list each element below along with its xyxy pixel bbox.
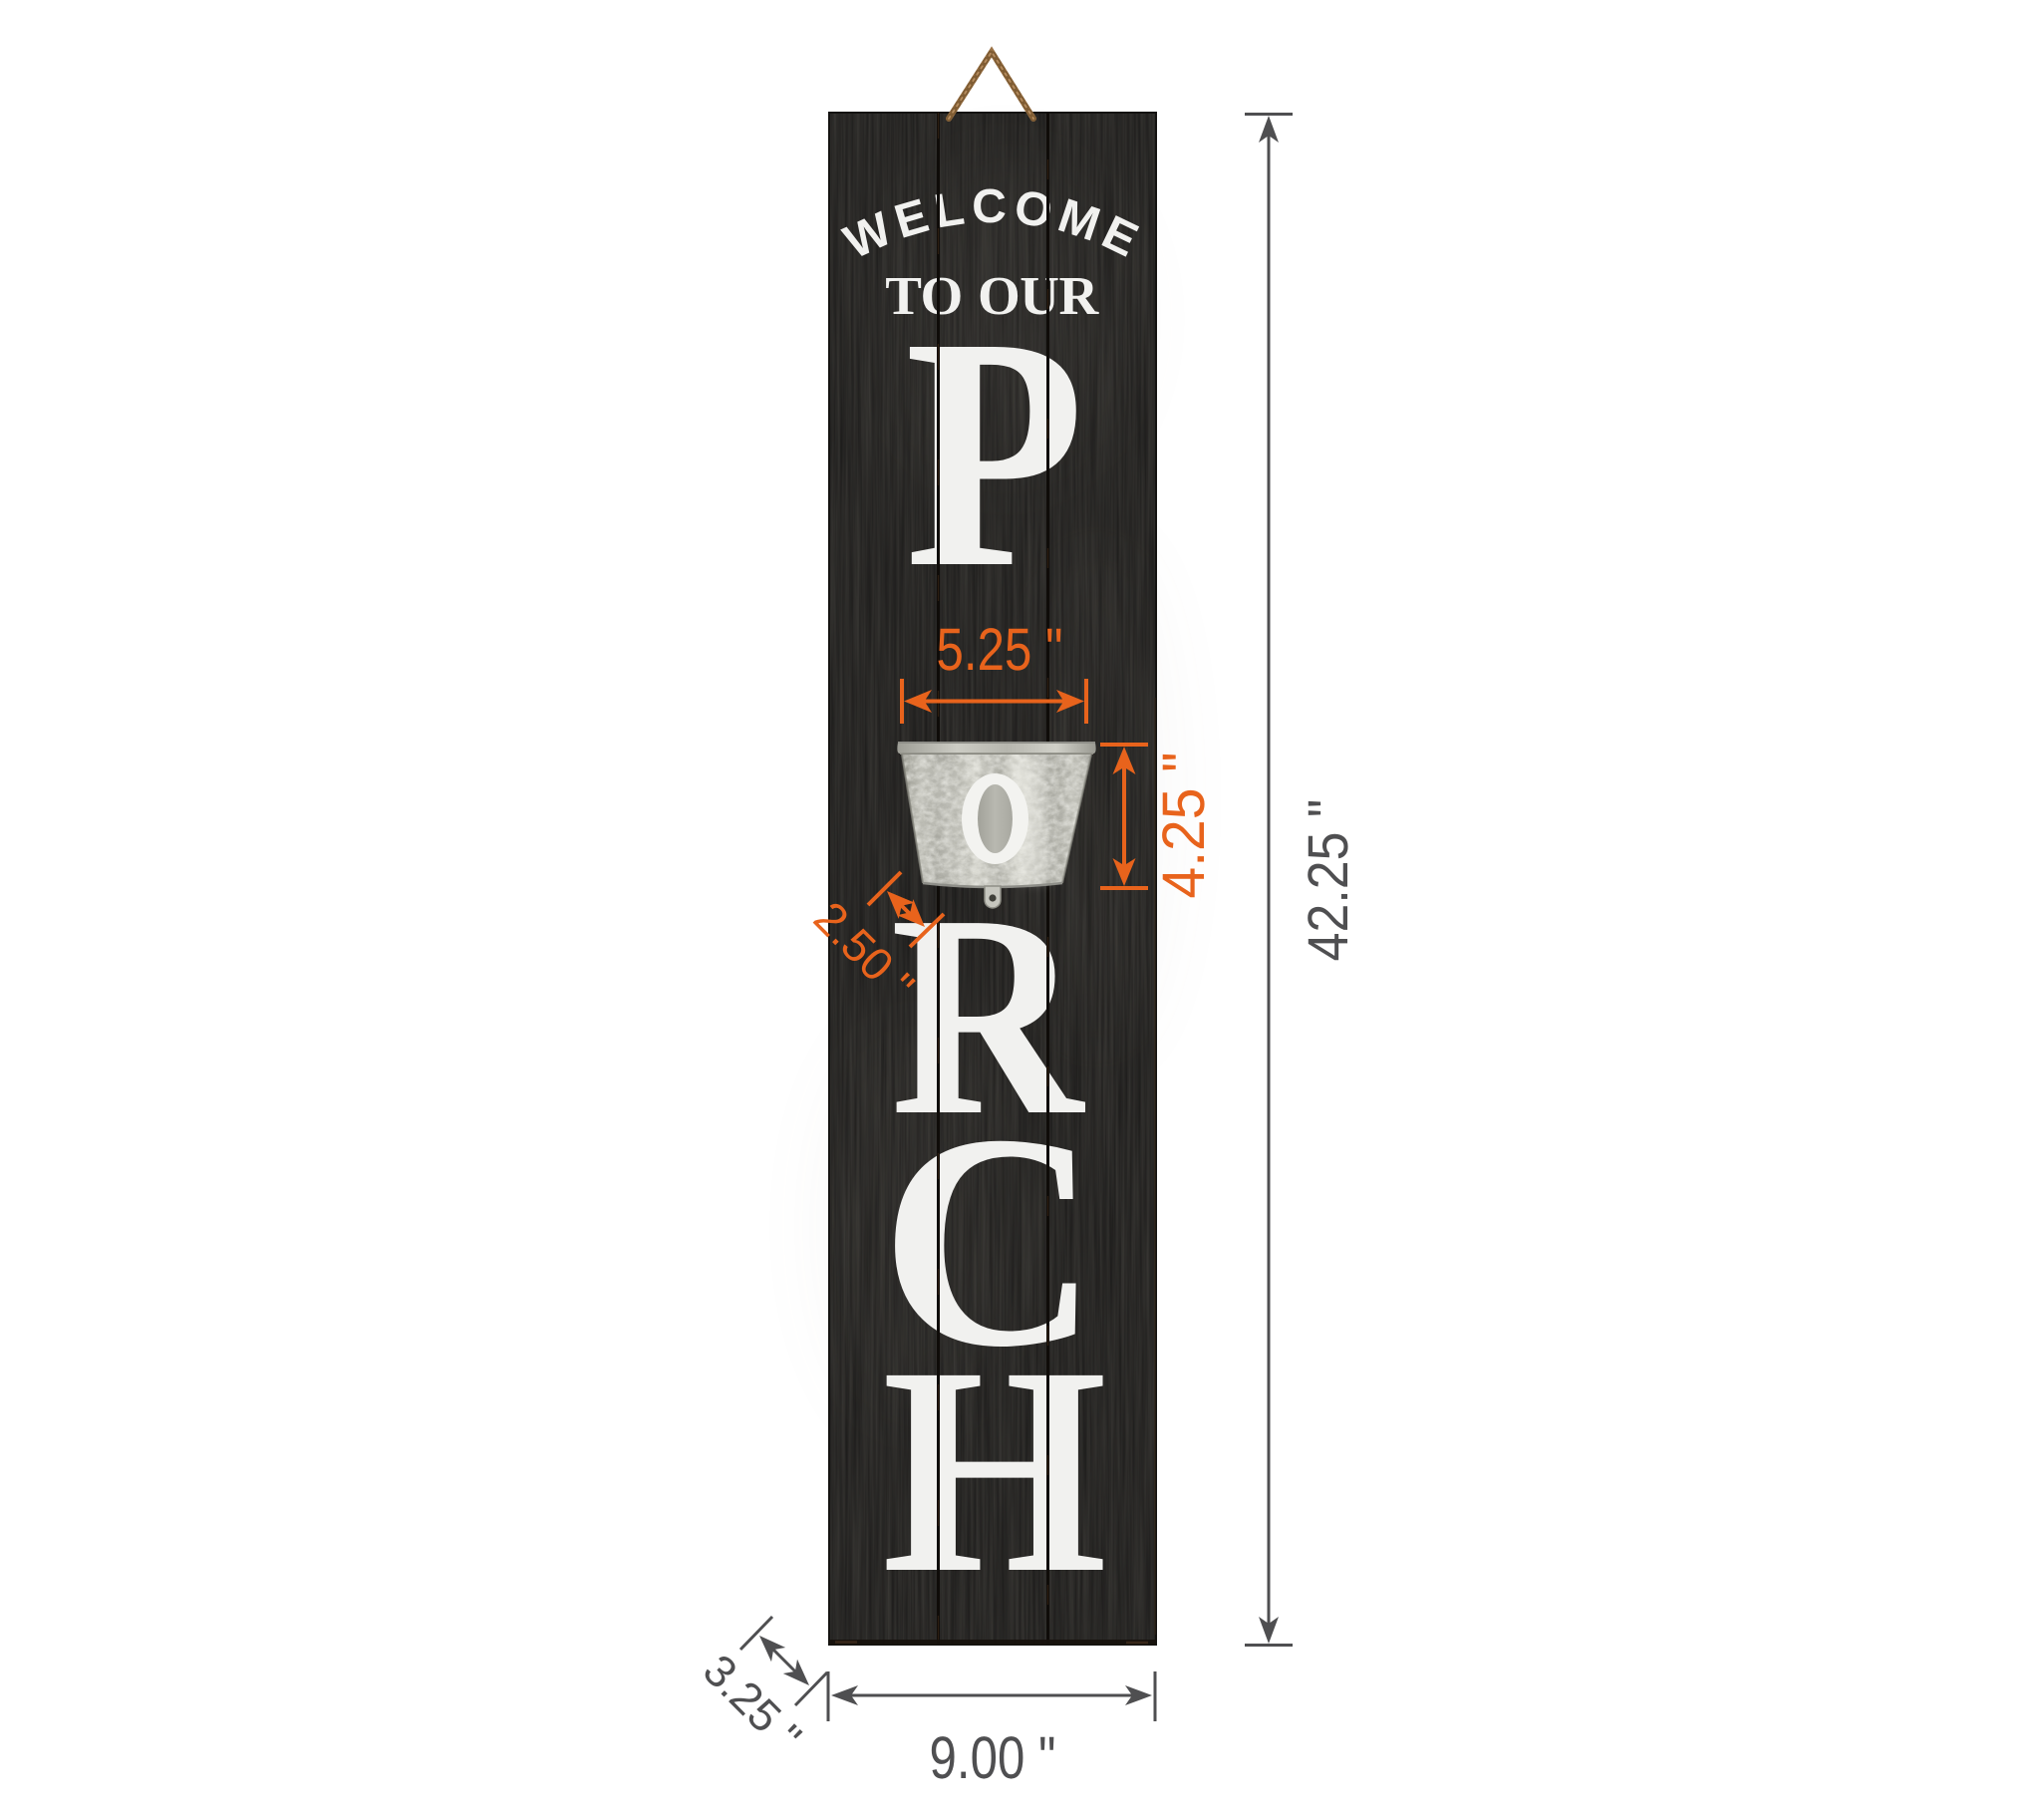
svg-text:42.25 ": 42.25 " <box>1297 799 1360 962</box>
svg-text:9.00 ": 9.00 " <box>930 1724 1056 1791</box>
svg-text:4.25 ": 4.25 " <box>1150 752 1217 898</box>
svg-text:5.25 ": 5.25 " <box>937 616 1063 683</box>
svg-text:3.25 ": 3.25 " <box>694 1645 811 1762</box>
svg-text:P: P <box>905 269 1084 637</box>
svg-text:H: H <box>882 1306 1108 1635</box>
